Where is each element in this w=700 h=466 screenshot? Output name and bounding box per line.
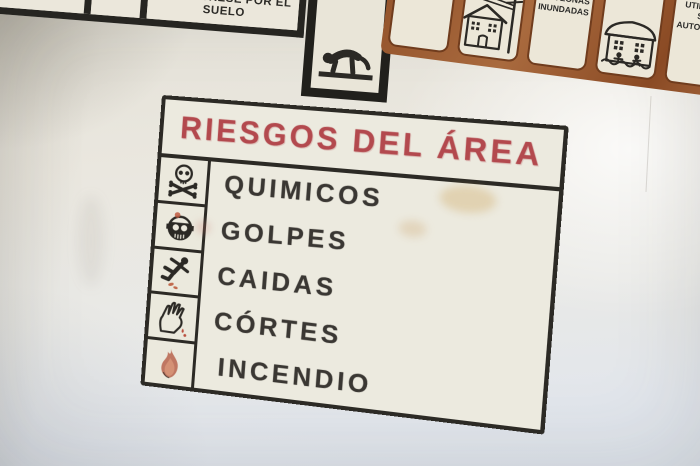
tile-house-power-line: [456, 0, 530, 63]
tile-text: 9 EVITE UTILIZAR SU AUTOMOVIL: [666, 0, 700, 88]
tile-house-flood: [595, 0, 669, 81]
band-cell-empty-2: [91, 0, 154, 19]
hazard-label: QUIMICOS: [223, 171, 384, 215]
hazard-icon-cell: [151, 248, 201, 299]
tile-electricity-text: ERQUE A CABLES DE ELECTRICIDAD: [387, 0, 461, 53]
bumped-head-icon: [159, 206, 199, 248]
tile-row-main: ERQUE A CABLES DE ELECTRICIDAD: [387, 0, 700, 90]
crawling-person-icon: [313, 31, 381, 88]
tile-text: ERQUE A CABLES DE ELECTRICIDAD: [389, 0, 459, 51]
hazard-label: CAIDAS: [216, 262, 338, 304]
wall-smudge: [78, 196, 104, 286]
hazard-label: INCENDIO: [217, 353, 373, 401]
tile-flood-text: 8 EVITE CAMINAR POR ZONAS INUNDADAS: [526, 0, 600, 72]
upper-left-sign-band: ARRASTRESE POR EL SUELO: [0, 0, 311, 38]
photo-wall-safety-signs: ARRASTRESE POR EL SUELO ERQUE A CABLES D…: [0, 0, 700, 466]
house-power-line-icon: [456, 0, 525, 58]
hazard-icon-cell: [148, 294, 198, 345]
flame-icon: [149, 342, 189, 384]
riesgos-del-area-sign: RIESGOS DEL ÁREA: [140, 95, 568, 435]
crawling-person-pictogram-box: [301, 0, 396, 103]
band-cell-empty-1: [0, 0, 98, 14]
sign-body: QUIMICOS GOLPES CAIDAS CÓRTES INCENDIO: [145, 157, 559, 430]
tile-text: 8 EVITE CAMINAR POR ZONAS INUNDADAS: [528, 0, 598, 69]
hazard-label: GOLPES: [220, 217, 350, 258]
upper-right-tile-sign: ERQUE A CABLES DE ELECTRICIDAD: [380, 0, 700, 99]
skull-crossbones-icon: [163, 160, 204, 201]
house-flood-icon: [595, 10, 664, 76]
hazard-list: QUIMICOS GOLPES CAIDAS CÓRTES INCENDIO: [194, 161, 559, 430]
hazard-label: CÓRTES: [213, 307, 343, 351]
tile-automobile-text: 9 EVITE UTILIZAR SU AUTOMOVIL: [664, 0, 700, 90]
hazard-icon-cell: [155, 203, 205, 253]
crawl-instruction-text: ARRASTRESE POR EL SUELO: [151, 0, 298, 24]
slipping-person-icon: [156, 251, 196, 293]
hazard-icon-cell: [158, 157, 208, 207]
cut-hand-icon: [153, 297, 193, 339]
hazard-icon-cell: [145, 339, 195, 387]
wall-crack: [645, 96, 651, 192]
band-cell-instruction: ARRASTRESE POR EL SUELO: [146, 0, 304, 30]
